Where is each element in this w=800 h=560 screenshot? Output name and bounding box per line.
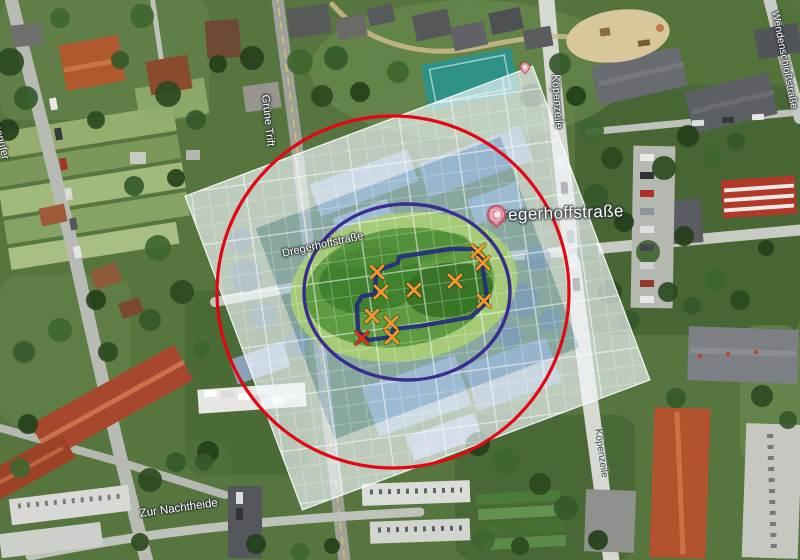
pin-dot <box>522 64 528 70</box>
map-image <box>0 0 800 560</box>
pin-dot <box>492 210 500 218</box>
map-canvas[interactable]: Dregerhoffstraße Dregerhoffstraße Grüne … <box>0 0 800 560</box>
